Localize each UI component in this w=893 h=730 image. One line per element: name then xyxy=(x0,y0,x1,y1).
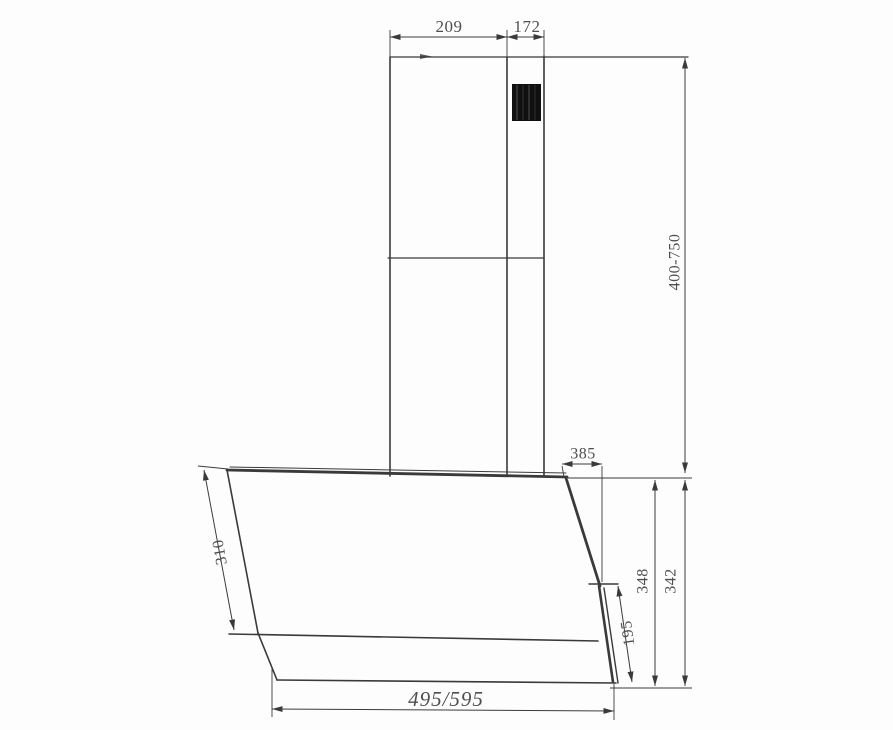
dimension-209: 209 xyxy=(390,17,507,57)
dimension-195: 195 xyxy=(618,586,638,682)
dim-label-172: 172 xyxy=(514,17,541,36)
cooker-hood-dimension-drawing: 209 172 400-750 385 348 342 xyxy=(0,0,893,730)
dim-label-495-595: 495/595 xyxy=(408,687,484,711)
dim-label-348: 348 xyxy=(635,568,652,594)
dimension-385: 385 xyxy=(562,446,602,582)
dimension-348: 348 xyxy=(635,480,655,686)
dimension-495-595: 495/595 xyxy=(272,668,614,720)
hood-top-edge xyxy=(227,470,567,477)
dim-label-400-750: 400-750 xyxy=(667,234,684,291)
glass-front-slant-edge xyxy=(227,470,258,633)
lower-front-slant-edge xyxy=(258,633,277,680)
top-line-arrow-mark xyxy=(420,54,432,59)
dim-label-385: 385 xyxy=(570,446,596,463)
drawing-canvas: 209 172 400-750 385 348 342 xyxy=(0,0,893,730)
body-bottom-edge xyxy=(277,680,616,683)
hood-body-outline xyxy=(227,467,618,683)
vent-grille xyxy=(512,84,541,121)
back-slant-upper-edge xyxy=(566,478,600,586)
dimension-172: 172 xyxy=(507,17,544,56)
dim-label-209: 209 xyxy=(436,17,463,36)
glass-bottom-edge xyxy=(229,634,598,641)
dim-label-195: 195 xyxy=(618,619,638,647)
dim-label-342: 342 xyxy=(663,568,680,594)
extension-line xyxy=(562,466,564,477)
dimension-342: 342 xyxy=(663,480,685,686)
dim-label-310: 310 xyxy=(210,538,231,566)
dimension-310: 310 xyxy=(198,466,234,630)
dimension-400-750: 400-750 xyxy=(667,58,685,473)
extension-line xyxy=(198,466,228,469)
